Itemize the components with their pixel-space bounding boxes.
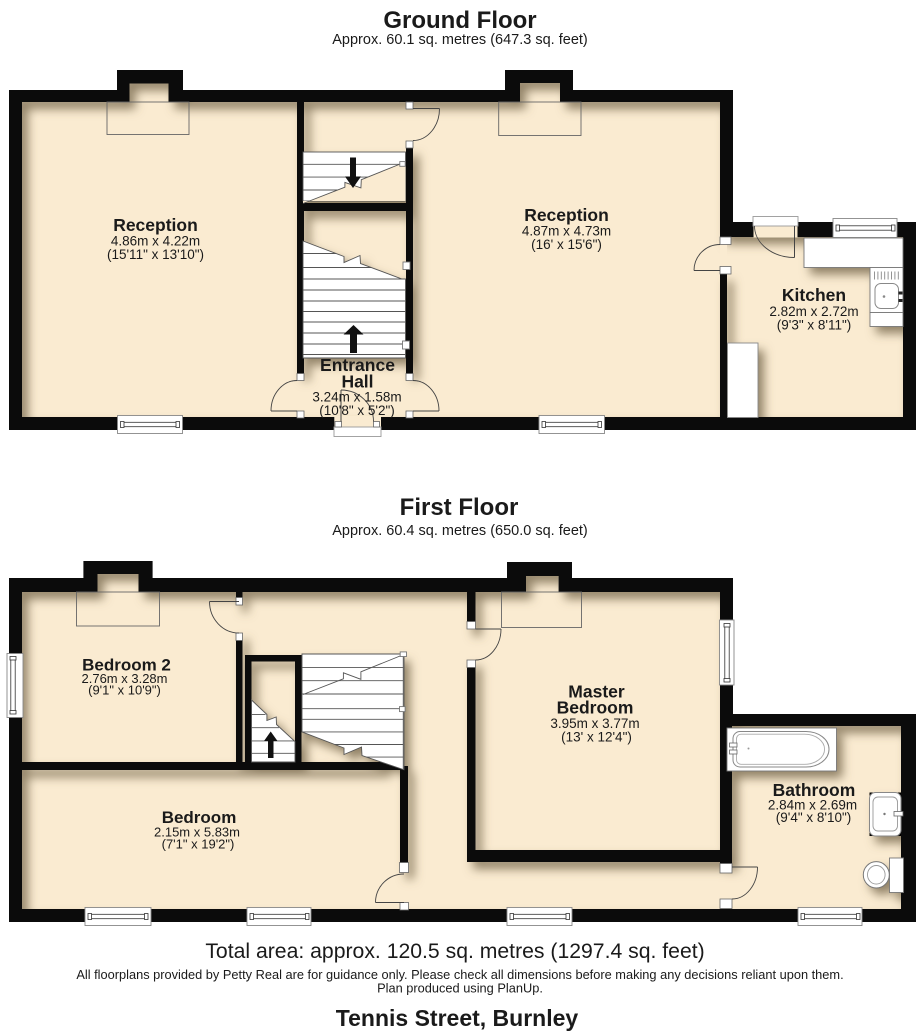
svg-text:Kitchen: Kitchen xyxy=(782,285,846,305)
svg-text:Reception: Reception xyxy=(113,215,198,235)
svg-text:Total area: approx. 120.5 sq.: Total area: approx. 120.5 sq. metres (12… xyxy=(205,940,704,963)
svg-text:Reception: Reception xyxy=(524,205,609,225)
svg-text:Tennis Street, Burnley: Tennis Street, Burnley xyxy=(336,1005,579,1031)
svg-text:(10'8" x 5'2"): (10'8" x 5'2") xyxy=(319,403,395,418)
svg-text:Plan produced using PlanUp.: Plan produced using PlanUp. xyxy=(377,981,543,996)
svg-text:Approx. 60.1 sq. metres (647.3: Approx. 60.1 sq. metres (647.3 sq. feet) xyxy=(332,32,588,48)
svg-text:Bedroom: Bedroom xyxy=(557,698,634,718)
svg-text:Approx. 60.4 sq. metres (650.0: Approx. 60.4 sq. metres (650.0 sq. feet) xyxy=(332,523,588,539)
svg-text:(9'3" x 8'11"): (9'3" x 8'11") xyxy=(777,318,852,333)
svg-text:(13' x 12'4"): (13' x 12'4") xyxy=(561,730,632,745)
svg-text:(9'4" x 8'10"): (9'4" x 8'10") xyxy=(776,810,852,825)
svg-text:(15'11" x 13'10"): (15'11" x 13'10") xyxy=(107,247,204,262)
svg-text:Hall: Hall xyxy=(341,372,373,392)
svg-text:(16' x 15'6"): (16' x 15'6") xyxy=(531,237,602,252)
svg-text:Ground Floor: Ground Floor xyxy=(383,7,536,34)
svg-text:(9'1" x 10'9"): (9'1" x 10'9") xyxy=(88,683,161,698)
svg-text:First Floor: First Floor xyxy=(400,494,519,521)
svg-text:(7'1" x 19'2"): (7'1" x 19'2") xyxy=(162,837,235,852)
